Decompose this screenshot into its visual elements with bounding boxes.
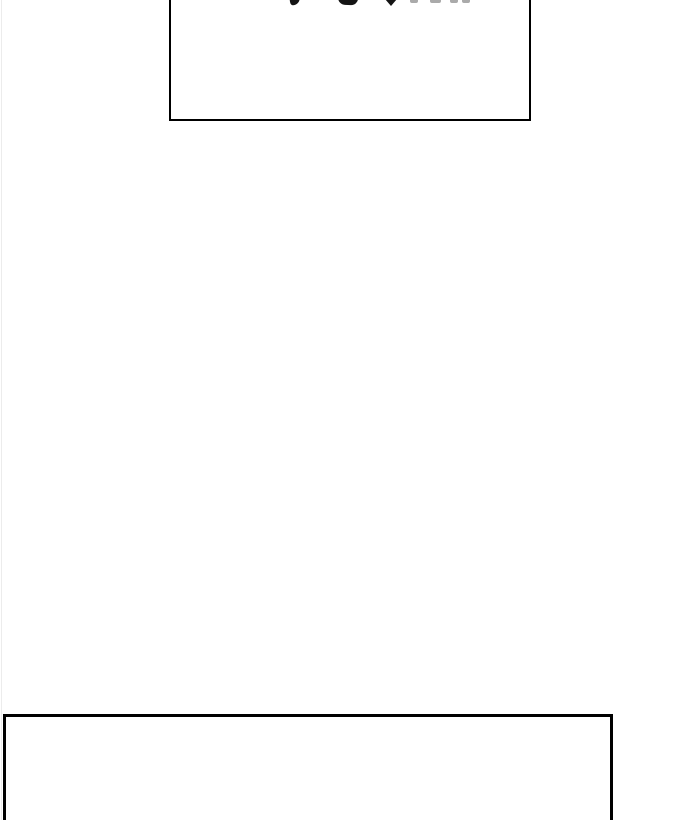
canvas-left-edge-line [1, 0, 2, 820]
bottom-flowchart-box[interactable] [3, 714, 613, 820]
clipped-glyph-dash-fragment [430, 0, 441, 3]
clipped-glyph-dash-fragment [450, 0, 458, 3]
clipped-glyph-dash-fragment [462, 0, 470, 3]
clipped-glyph-dash-fragment [410, 0, 418, 3]
clipped-descender-vee-fragment [385, 0, 397, 6]
top-flowchart-box[interactable] [169, 0, 531, 121]
diagram-canvas [0, 0, 700, 820]
